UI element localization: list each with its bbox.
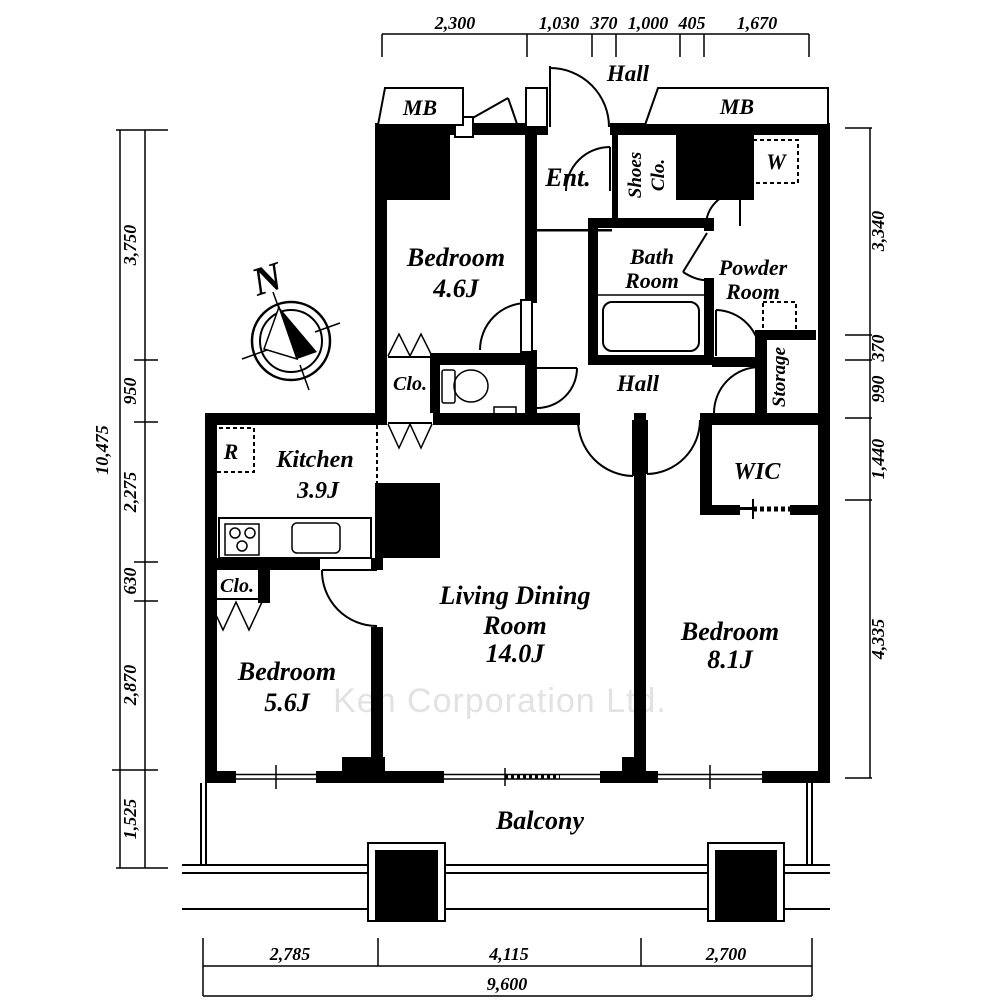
bathtub bbox=[603, 302, 699, 351]
floorplan-page: Ken Corporation Ltd. bbox=[0, 0, 1000, 1000]
dim-left-2: 2,275 bbox=[120, 472, 140, 514]
bath-label-1: Bath bbox=[629, 244, 674, 269]
bedroom2-name: Bedroom bbox=[237, 657, 336, 686]
entrance-label: Ent. bbox=[544, 163, 591, 192]
watermark-text: Ken Corporation Ltd. bbox=[333, 682, 667, 720]
dim-left-3: 630 bbox=[120, 568, 140, 595]
pillar-right bbox=[715, 850, 777, 920]
closet-toilet-label: Clo. bbox=[393, 373, 427, 395]
mb-right-label: MB bbox=[719, 94, 754, 119]
dim-right-2: 990 bbox=[868, 376, 888, 403]
powder-label-2: Room bbox=[725, 279, 780, 304]
dim-top-0: 2,300 bbox=[434, 13, 476, 33]
dim-bottom-total: 9,600 bbox=[487, 974, 528, 994]
shoes-closet-label-2: Clo. bbox=[648, 159, 669, 191]
fridge-label: R bbox=[223, 439, 239, 464]
bedroom1-size: 4.6J bbox=[432, 274, 480, 303]
bedroom3-name: Bedroom bbox=[680, 617, 779, 646]
pillar-left bbox=[375, 850, 438, 920]
hall-outer-label: Hall bbox=[606, 61, 650, 86]
dim-top-5: 1,670 bbox=[737, 13, 778, 33]
bedroom1-door-leaf bbox=[521, 300, 532, 352]
entrance-door-gap bbox=[548, 123, 610, 135]
dim-bottom-0: 2,785 bbox=[269, 944, 311, 964]
living-size: 14.0J bbox=[486, 639, 546, 668]
dim-top-4: 405 bbox=[678, 13, 706, 33]
dim-top-1: 1,030 bbox=[539, 13, 580, 33]
dim-right-0: 3,340 bbox=[868, 211, 888, 253]
powder-label-1: Powder bbox=[718, 255, 788, 280]
corridor-column bbox=[526, 88, 547, 127]
bedroom1-name: Bedroom bbox=[406, 243, 505, 272]
kitchen-name: Kitchen bbox=[275, 447, 353, 473]
dim-right-4: 4,335 bbox=[868, 619, 888, 661]
dim-bottom-2: 2,700 bbox=[705, 944, 747, 964]
floorplan-drawing: Ken Corporation Ltd. bbox=[0, 0, 1000, 1000]
bedroom3-size: 8.1J bbox=[707, 645, 754, 674]
dim-right-1: 370 bbox=[868, 335, 888, 363]
mb-left-label: MB bbox=[402, 95, 437, 120]
dim-left-4: 2,870 bbox=[120, 665, 140, 707]
shoes-closet-label-1: Shoes bbox=[625, 152, 646, 198]
dim-bottom-1: 4,115 bbox=[488, 944, 529, 964]
dim-top-3: 1,000 bbox=[628, 13, 669, 33]
dim-left-total: 10,475 bbox=[92, 425, 112, 475]
living-label-2: Room bbox=[482, 611, 547, 640]
dim-top-2: 370 bbox=[590, 13, 618, 33]
dim-left-1: 950 bbox=[120, 378, 140, 405]
dim-right-3: 1,440 bbox=[868, 439, 888, 480]
dim-left-0: 3,750 bbox=[120, 225, 140, 267]
hall-inner-label: Hall bbox=[616, 371, 660, 396]
entrance-step-line bbox=[537, 229, 612, 232]
bath-label-2: Room bbox=[624, 268, 679, 293]
living-label-1: Living Dining bbox=[439, 581, 591, 610]
storage-label: Storage bbox=[769, 346, 790, 407]
wic-label: WIC bbox=[734, 459, 782, 485]
closet2-label: Clo. bbox=[220, 575, 254, 597]
bedroom2-size: 5.6J bbox=[264, 688, 311, 717]
balcony-label: Balcony bbox=[495, 806, 585, 835]
washer-label: W bbox=[766, 149, 787, 174]
dim-left-5: 1,525 bbox=[120, 799, 140, 840]
kitchen-size: 3.9J bbox=[296, 478, 340, 504]
